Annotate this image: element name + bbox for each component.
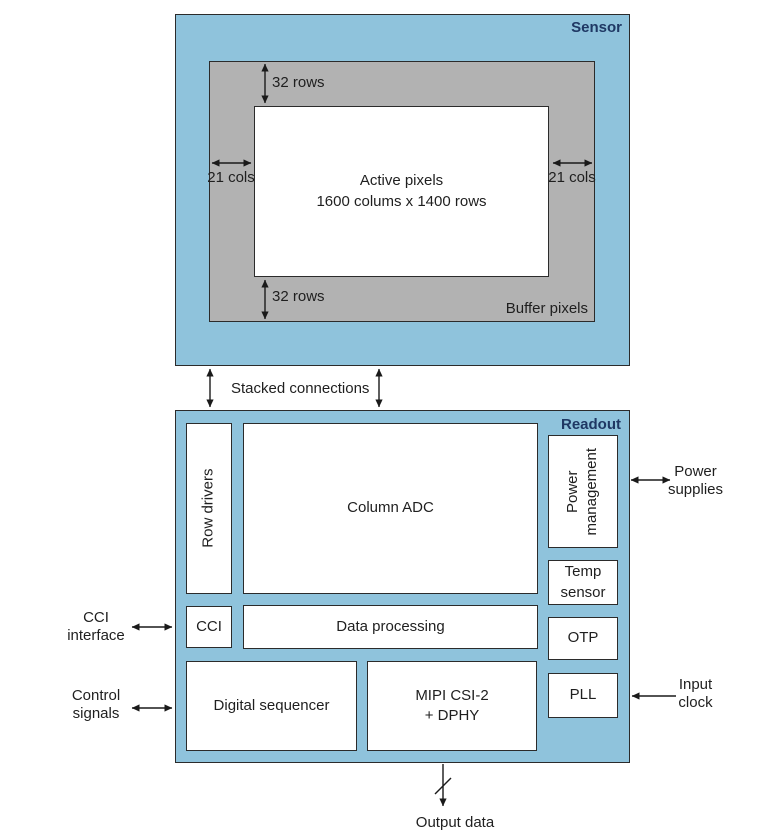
- buffer-pixels-label: Buffer pixels: [470, 300, 588, 318]
- sensor-title: Sensor: [500, 19, 622, 36]
- data-processing-block: Data processing: [243, 605, 538, 649]
- row-drivers-block: Row drivers: [186, 423, 232, 594]
- otp-block: OTP: [548, 617, 618, 660]
- power-supplies-label: Power supplies: [653, 463, 738, 499]
- active-pixels-label: Active pixels 1600 colums x 1400 rows: [316, 171, 486, 212]
- data-processing-label: Data processing: [336, 617, 444, 637]
- dimension-label-right-cols: 21 cols: [546, 169, 598, 187]
- cci-label: CCI: [196, 617, 222, 637]
- pll-label: PLL: [570, 685, 597, 705]
- cci-block: CCI: [186, 606, 232, 648]
- dimension-label-bottom-rows: 32 rows: [272, 288, 325, 306]
- active-pixels-region: Active pixels 1600 colums x 1400 rows: [254, 106, 549, 277]
- mipi-label: MIPI CSI-2 + DPHY: [415, 686, 488, 727]
- bus-slash-icon: [435, 778, 451, 794]
- diagram-canvas: Sensor Active pixels 1600 colums x 1400 …: [0, 0, 780, 835]
- dimension-label-left-cols: 21 cols: [205, 169, 257, 187]
- stacked-connections-label: Stacked connections: [231, 380, 369, 398]
- cci-interface-label: CCI interface: [56, 609, 136, 645]
- temp-sensor-label: Temp sensor: [560, 562, 605, 603]
- output-data-label: Output data: [395, 814, 515, 832]
- pll-block: PLL: [548, 673, 618, 718]
- power-management-label: Power management: [564, 448, 602, 536]
- row-drivers-label: Row drivers: [199, 469, 219, 548]
- column-adc-label: Column ADC: [347, 498, 434, 518]
- column-adc-block: Column ADC: [243, 423, 538, 594]
- temp-sensor-block: Temp sensor: [548, 560, 618, 605]
- dimension-label-top-rows: 32 rows: [272, 74, 325, 92]
- digital-sequencer-block: Digital sequencer: [186, 661, 357, 751]
- control-signals-label: Control signals: [56, 687, 136, 723]
- input-clock-label: Input clock: [653, 676, 738, 712]
- arrow-output-data: [435, 764, 451, 806]
- power-management-block: Power management: [548, 435, 618, 548]
- digital-sequencer-label: Digital sequencer: [214, 696, 330, 716]
- otp-label: OTP: [568, 628, 599, 648]
- mipi-block: MIPI CSI-2 + DPHY: [367, 661, 537, 751]
